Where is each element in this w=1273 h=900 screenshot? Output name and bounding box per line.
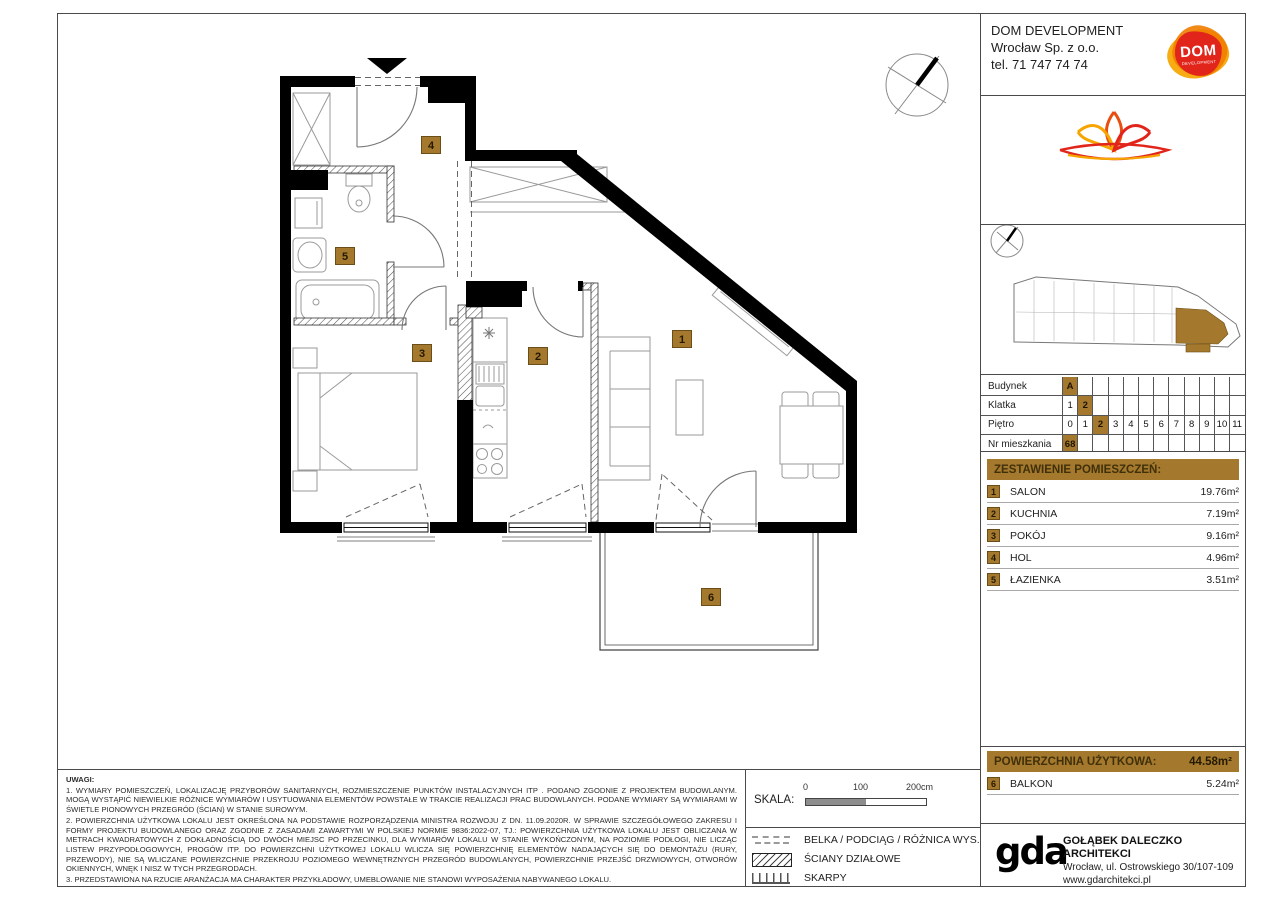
svg-text:6: 6: [708, 592, 714, 604]
slope-ticks-icon: [752, 871, 792, 885]
unit-table-row-label: Piętro: [981, 416, 1062, 434]
scale-label: SKALA:: [754, 794, 794, 806]
balkon-name: BALKON: [1010, 778, 1053, 790]
balkon-row: 6 BALKON 5.24m²: [987, 773, 1239, 795]
brand-box: APARTAMENTY NAD OŁAWKĄ: [980, 95, 1246, 225]
unit-table-cell: 2: [1077, 396, 1092, 414]
room-number-chip: 4: [987, 551, 1000, 564]
room-label-hol: 4: [422, 137, 441, 154]
room-label-lazienka: 5: [336, 248, 355, 265]
developer-phone: tel. 71 747 74 74: [991, 56, 1123, 73]
dom-development-logo-icon: DOM DEVELOPMENT: [1165, 24, 1231, 84]
unit-table-cell: [1123, 396, 1138, 414]
legend-item-belka: BELKA / PODCIĄG / RÓŻNICA WYS.: [752, 831, 980, 849]
unit-table-cell: [1214, 377, 1229, 395]
overview-compass-icon: [991, 225, 1023, 257]
unit-table-cell: [1138, 377, 1153, 395]
unit-table-cell: [1199, 377, 1214, 395]
unit-table-cell: 0: [1062, 416, 1077, 434]
svg-text:3: 3: [419, 348, 425, 360]
note-1: 1. WYMIARY POMIESZCZEŃ, LOKALIZACJĘ PRZY…: [66, 786, 737, 815]
room-name: KUCHNIA: [1010, 508, 1057, 520]
unit-table-cell: [1092, 396, 1107, 414]
usable-area-value: 44.58m²: [1189, 756, 1232, 768]
svg-text:5: 5: [342, 251, 348, 263]
unit-table-cell: 3: [1108, 416, 1123, 434]
hatched-wall-icon: [752, 852, 792, 866]
room-row: 4HOL4.96m²: [987, 547, 1239, 569]
room-area: 19.76m²: [1200, 486, 1239, 498]
unit-table-cell: [1168, 396, 1183, 414]
room-name: SALON: [1010, 486, 1046, 498]
unit-table-cell: [1108, 377, 1123, 395]
room-row: 2KUCHNIA7.19m²: [987, 503, 1239, 525]
unit-table-cell: A: [1062, 377, 1077, 395]
svg-text:4: 4: [428, 140, 435, 152]
unit-table-cell: [1199, 396, 1214, 414]
architect-website: www.gdarchitekci.pl: [1063, 874, 1245, 887]
windows: [337, 523, 758, 541]
legend-item-skarpy: SKARPY: [752, 869, 980, 887]
room-area: 7.19m²: [1206, 508, 1239, 520]
unit-table-row: BudynekA: [981, 377, 1245, 396]
unit-table-row: Piętro01234567891011: [981, 416, 1245, 435]
drawing-sheet: 1 2 3 4 5 6 DOM DEVELOPMENT Wrocław Sp. …: [0, 0, 1273, 900]
entrance-marker: [367, 58, 407, 74]
room-row: 1SALON19.76m²: [987, 481, 1239, 503]
unit-table-cell: 6: [1153, 416, 1168, 434]
unit-table-cell: [1123, 377, 1138, 395]
architect-address: Wrocław, ul. Ostrowskiego 30/107-109: [1063, 861, 1245, 874]
unit-table-cell: [1168, 377, 1183, 395]
notes-box: UWAGI: 1. WYMIARY POMIESZCZEŃ, LOKALIZAC…: [57, 769, 746, 887]
room-name: ŁAZIENKA: [1010, 574, 1061, 586]
room-number-chip: 5: [987, 573, 1000, 586]
scale-tick-0: 0: [803, 782, 808, 792]
unit-table-cell: [1214, 396, 1229, 414]
rooms-list-box: ZESTAWIENIE POMIESZCZEŃ: 1SALON19.76m²2K…: [980, 451, 1246, 747]
unit-table-row-label: Klatka: [981, 396, 1062, 414]
room-number-chip: 1: [987, 485, 1000, 498]
unit-table-cell: 1: [1077, 416, 1092, 434]
unit-table-cell: 10: [1214, 416, 1229, 434]
unit-table-cell: 7: [1168, 416, 1183, 434]
usable-area-bar: POWIERZCHNIA UŻYTKOWA: 44.58m²: [987, 751, 1239, 772]
developer-info: DOM DEVELOPMENT Wrocław Sp. z o.o. tel. …: [991, 22, 1123, 73]
developer-name: DOM DEVELOPMENT: [991, 22, 1123, 39]
room-area: 4.96m²: [1206, 552, 1239, 564]
room-label-balkon: 6: [702, 589, 721, 606]
unit-table-cell: [1092, 377, 1107, 395]
unit-table-cell: [1153, 377, 1168, 395]
architect-box: gda GOŁĄBEK DALECZKO ARCHITEKCI Wrocław,…: [980, 823, 1246, 887]
scale-bar: [805, 798, 927, 806]
unit-table-cell: [1153, 396, 1168, 414]
room-number-chip: 3: [987, 529, 1000, 542]
scale-tick-100: 100: [853, 782, 868, 792]
unit-table-cell: [1138, 396, 1153, 414]
unit-table-cell: 5: [1138, 416, 1153, 434]
unit-table-cell: [1229, 396, 1244, 414]
legend-item-sciany: ŚCIANY DZIAŁOWE: [752, 850, 980, 868]
scale-box: SKALA: 0 100 200cm: [745, 769, 981, 828]
dashed-line-icon: [752, 833, 792, 847]
lotus-logo-icon: [1054, 104, 1174, 162]
usable-area-box: POWIERZCHNIA UŻYTKOWA: 44.58m² 6 BALKON …: [980, 746, 1246, 824]
rooms-list-header: ZESTAWIENIE POMIESZCZEŃ:: [987, 459, 1239, 480]
room-label-kuchnia: 2: [529, 348, 548, 365]
notes-title: UWAGI:: [66, 775, 737, 785]
building-overview: [981, 225, 1245, 374]
room-label-salon: 1: [673, 331, 692, 348]
svg-text:1: 1: [679, 334, 685, 346]
unit-table-row-label: Budynek: [981, 377, 1062, 395]
room-name: POKÓJ: [1010, 530, 1046, 542]
unit-table-cell: [1184, 377, 1199, 395]
developer-box: DOM DEVELOPMENT Wrocław Sp. z o.o. tel. …: [980, 13, 1246, 96]
unit-table-cell: 4: [1123, 416, 1138, 434]
legend-box: BELKA / PODCIĄG / RÓŻNICA WYS. ŚCIANY DZ…: [745, 827, 981, 887]
balkon-area: 5.24m²: [1206, 778, 1239, 790]
room-row: 3POKÓJ9.16m²: [987, 525, 1239, 547]
unit-table-cell: 11: [1229, 416, 1244, 434]
unit-table-cell: 1: [1062, 396, 1077, 414]
svg-text:2: 2: [535, 351, 541, 363]
usable-area-label: POWIERZCHNIA UŻYTKOWA:: [994, 756, 1156, 768]
gda-logo-icon: gda: [995, 830, 1067, 873]
unit-table-cell: 9: [1199, 416, 1214, 434]
floor-plan: 1 2 3 4 5 6: [58, 14, 980, 769]
note-3: 3. PRZEDSTAWIONA NA RZUCIE ARANŻACJA MA …: [66, 875, 737, 885]
unit-table-row: Klatka12: [981, 396, 1245, 415]
architect-name: GOŁĄBEK DALECZKO ARCHITEKCI: [1063, 835, 1245, 861]
unit-table-cell: [1229, 377, 1244, 395]
room-label-pokoj: 3: [413, 345, 432, 362]
note-2: 2. POWIERZCHNIA UŻYTKOWA LOKALU JEST OKR…: [66, 816, 737, 874]
unit-table-cell: [1077, 377, 1092, 395]
room-number-chip: 2: [987, 507, 1000, 520]
unit-table-cell: [1108, 396, 1123, 414]
rooms-rows: 1SALON19.76m²2KUCHNIA7.19m²3POKÓJ9.16m²4…: [981, 481, 1245, 591]
unit-table-cell: [1184, 396, 1199, 414]
room-area: 9.16m²: [1206, 530, 1239, 542]
room-row: 5ŁAZIENKA3.51m²: [987, 569, 1239, 591]
room-area: 3.51m²: [1206, 574, 1239, 586]
building-overview-box: [980, 224, 1246, 375]
room-name: HOL: [1010, 552, 1032, 564]
developer-company: Wrocław Sp. z o.o.: [991, 39, 1123, 56]
unit-table-cell: 2: [1092, 416, 1107, 434]
scale-tick-200: 200cm: [906, 782, 933, 792]
unit-locator-table: BudynekAKlatka12Piętro01234567891011Nr m…: [980, 374, 1246, 452]
compass-icon: [886, 54, 948, 116]
unit-table-cell: 8: [1184, 416, 1199, 434]
balkon-chip: 6: [987, 777, 1000, 790]
